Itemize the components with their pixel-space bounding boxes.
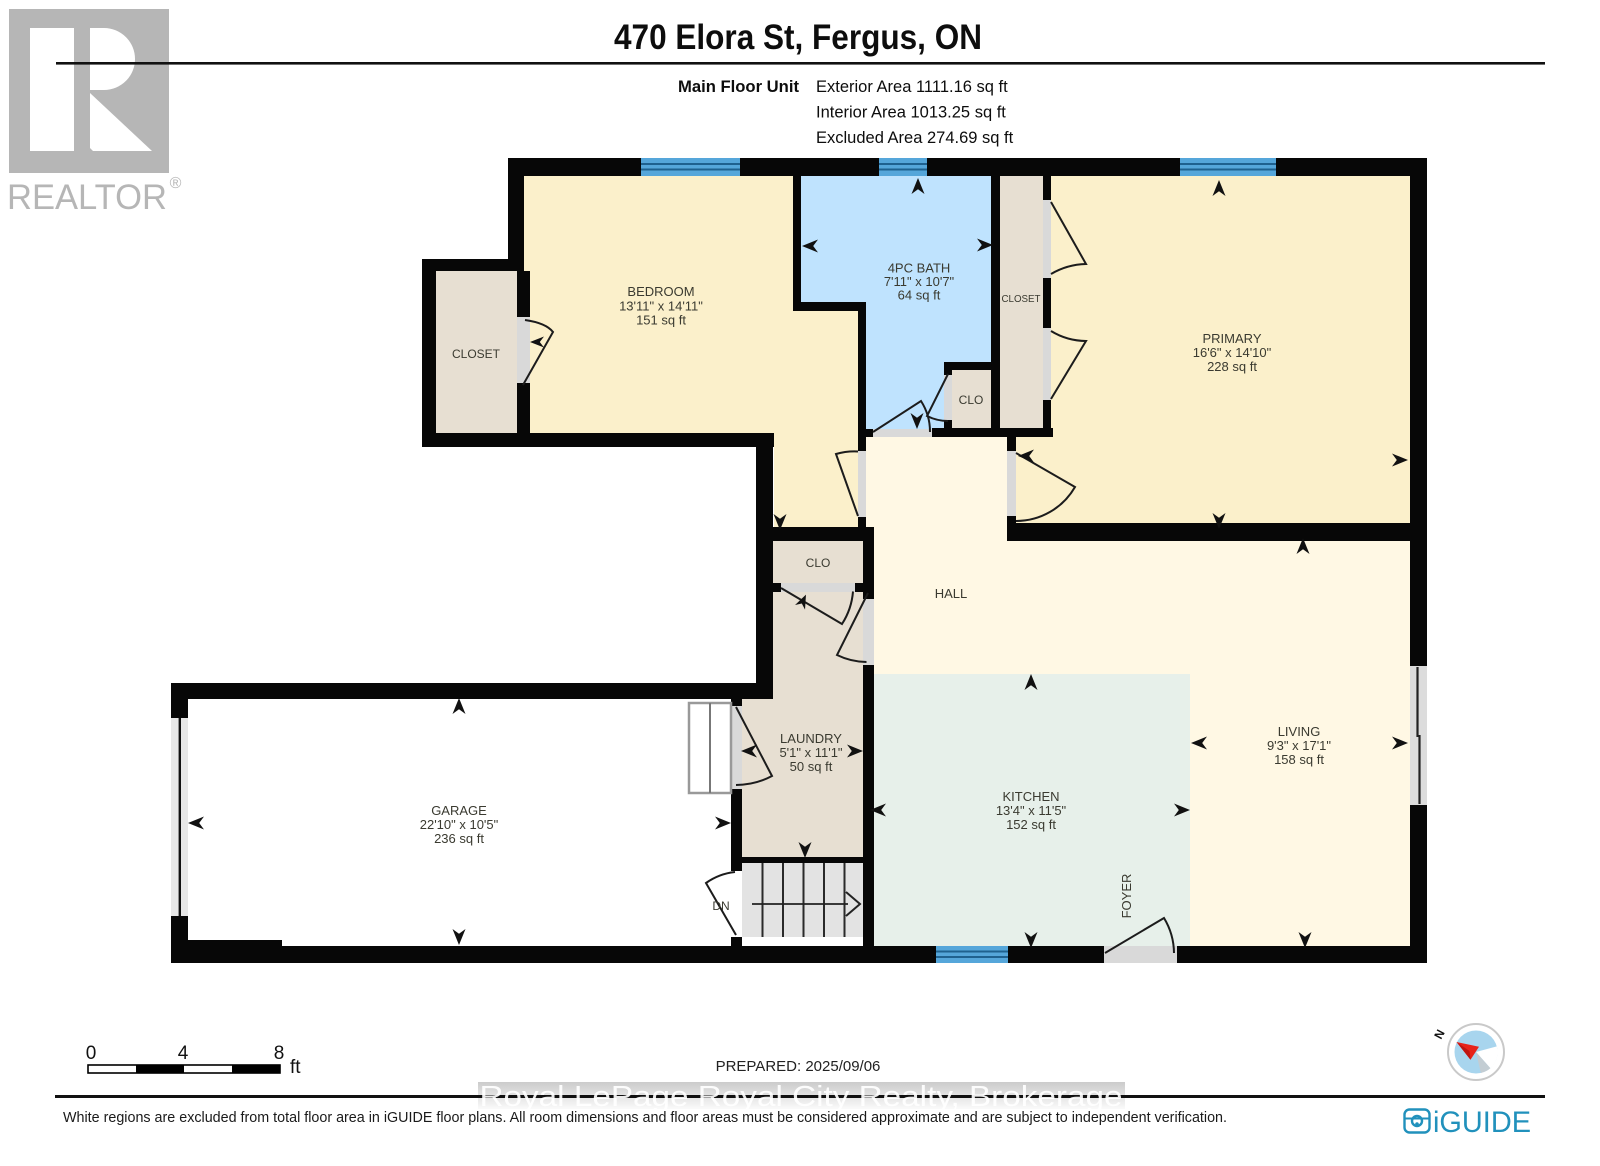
svg-text:13'4" x 11'5": 13'4" x 11'5" bbox=[996, 803, 1067, 818]
svg-text:236 sq ft: 236 sq ft bbox=[434, 831, 484, 846]
svg-text:228 sq ft: 228 sq ft bbox=[1207, 359, 1257, 374]
svg-text:BEDROOM: BEDROOM bbox=[627, 284, 694, 299]
svg-text:REALTOR: REALTOR bbox=[7, 178, 167, 217]
svg-text:Main Floor Unit: Main Floor Unit bbox=[678, 78, 799, 96]
svg-text:CLOSET: CLOSET bbox=[452, 347, 501, 361]
svg-text:LAUNDRY: LAUNDRY bbox=[780, 731, 842, 746]
svg-text:White regions are excluded fro: White regions are excluded from total fl… bbox=[63, 1109, 1227, 1126]
svg-text:22'10" x 10'5": 22'10" x 10'5" bbox=[420, 817, 499, 832]
svg-text:151 sq ft: 151 sq ft bbox=[636, 313, 686, 328]
svg-text:ft: ft bbox=[290, 1057, 301, 1078]
svg-text:CLO: CLO bbox=[959, 393, 984, 407]
svg-text:HALL: HALL bbox=[935, 586, 968, 601]
svg-text:Interior Area 1013.25 sq ft: Interior Area 1013.25 sq ft bbox=[816, 104, 1006, 122]
svg-text:8: 8 bbox=[274, 1043, 285, 1064]
svg-text:GARAGE: GARAGE bbox=[431, 803, 487, 818]
svg-text:KITCHEN: KITCHEN bbox=[1002, 789, 1059, 804]
svg-text:152 sq ft: 152 sq ft bbox=[1006, 817, 1056, 832]
svg-text:5'1" x 11'1": 5'1" x 11'1" bbox=[779, 745, 842, 760]
svg-text:Excluded Area 274.69 sq ft: Excluded Area 274.69 sq ft bbox=[816, 129, 1014, 147]
svg-text:iGUIDE: iGUIDE bbox=[1433, 1106, 1531, 1139]
svg-text:FOYER: FOYER bbox=[1119, 874, 1134, 919]
svg-text:DN: DN bbox=[712, 899, 729, 913]
svg-text:CLO: CLO bbox=[806, 556, 831, 570]
svg-text:Exterior Area 1111.16 sq ft: Exterior Area 1111.16 sq ft bbox=[816, 78, 1008, 96]
svg-text:4: 4 bbox=[178, 1043, 189, 1064]
svg-text:16'6" x 14'10": 16'6" x 14'10" bbox=[1193, 345, 1272, 360]
svg-text:13'11" x 14'11": 13'11" x 14'11" bbox=[619, 299, 703, 314]
svg-text:®: ® bbox=[170, 175, 182, 192]
svg-text:64 sq ft: 64 sq ft bbox=[898, 288, 941, 303]
svg-text:9'3" x 17'1": 9'3" x 17'1" bbox=[1267, 738, 1331, 753]
svg-text:158 sq ft: 158 sq ft bbox=[1274, 752, 1324, 767]
svg-text:LIVING: LIVING bbox=[1278, 724, 1321, 739]
svg-text:470 Elora St, Fergus, ON: 470 Elora St, Fergus, ON bbox=[614, 18, 982, 57]
svg-text:0: 0 bbox=[86, 1043, 97, 1064]
svg-text:50 sq ft: 50 sq ft bbox=[790, 759, 833, 774]
svg-text:CLOSET: CLOSET bbox=[1002, 293, 1042, 305]
svg-text:PRIMARY: PRIMARY bbox=[1203, 331, 1262, 346]
svg-text:PREPARED: 2025/09/06: PREPARED: 2025/09/06 bbox=[716, 1058, 881, 1075]
